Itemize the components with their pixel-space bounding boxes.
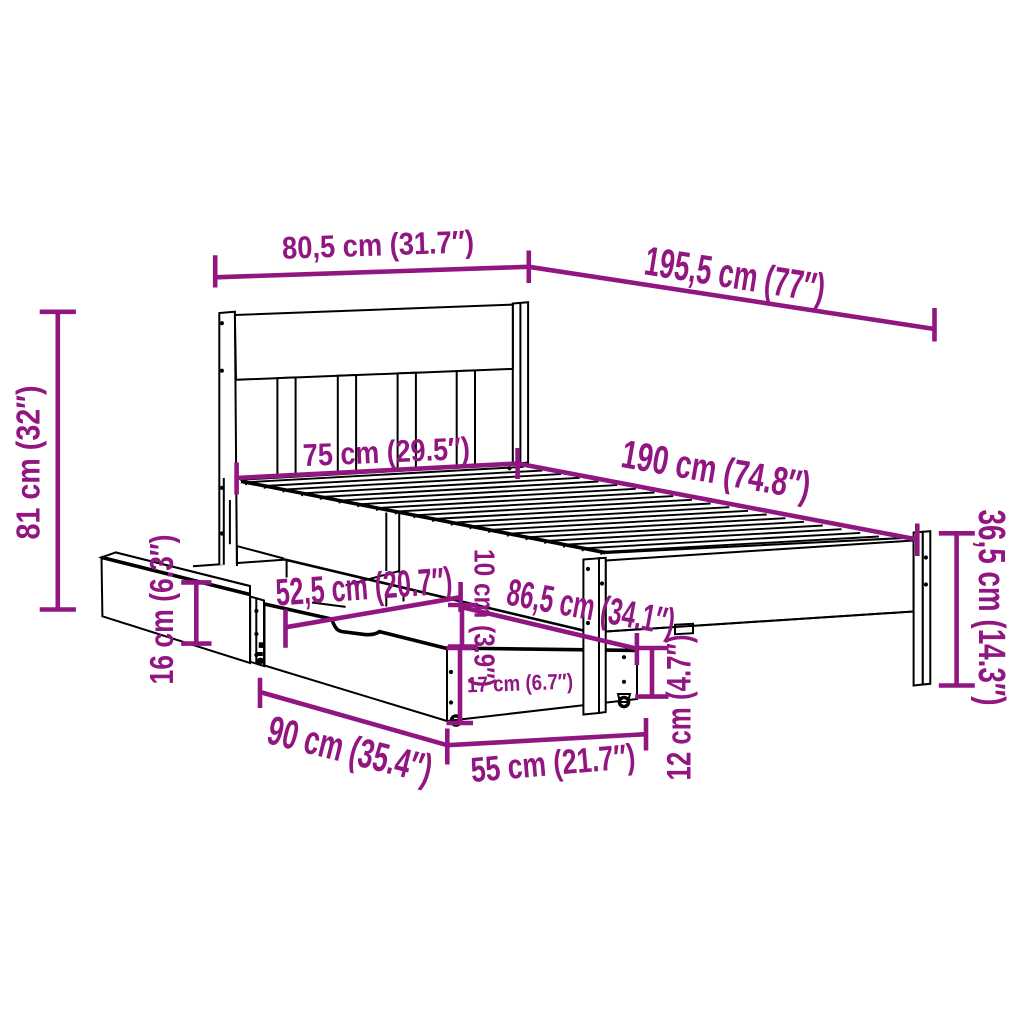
svg-text:17 cm (6.7″): 17 cm (6.7″)	[467, 669, 574, 698]
svg-text:12 cm (4.7″): 12 cm (4.7″)	[661, 635, 699, 781]
svg-text:10 cm (3.9″): 10 cm (3.9″)	[468, 549, 500, 687]
svg-text:80,5 cm (31.7″): 80,5 cm (31.7″)	[281, 223, 474, 266]
svg-text:36,5 cm (14.3″): 36,5 cm (14.3″)	[970, 510, 1012, 706]
svg-text:81 cm (32″): 81 cm (32″)	[10, 386, 47, 540]
svg-text:75 cm (29.5″): 75 cm (29.5″)	[302, 430, 470, 473]
svg-text:16 cm (6.3″): 16 cm (6.3″)	[143, 535, 180, 685]
